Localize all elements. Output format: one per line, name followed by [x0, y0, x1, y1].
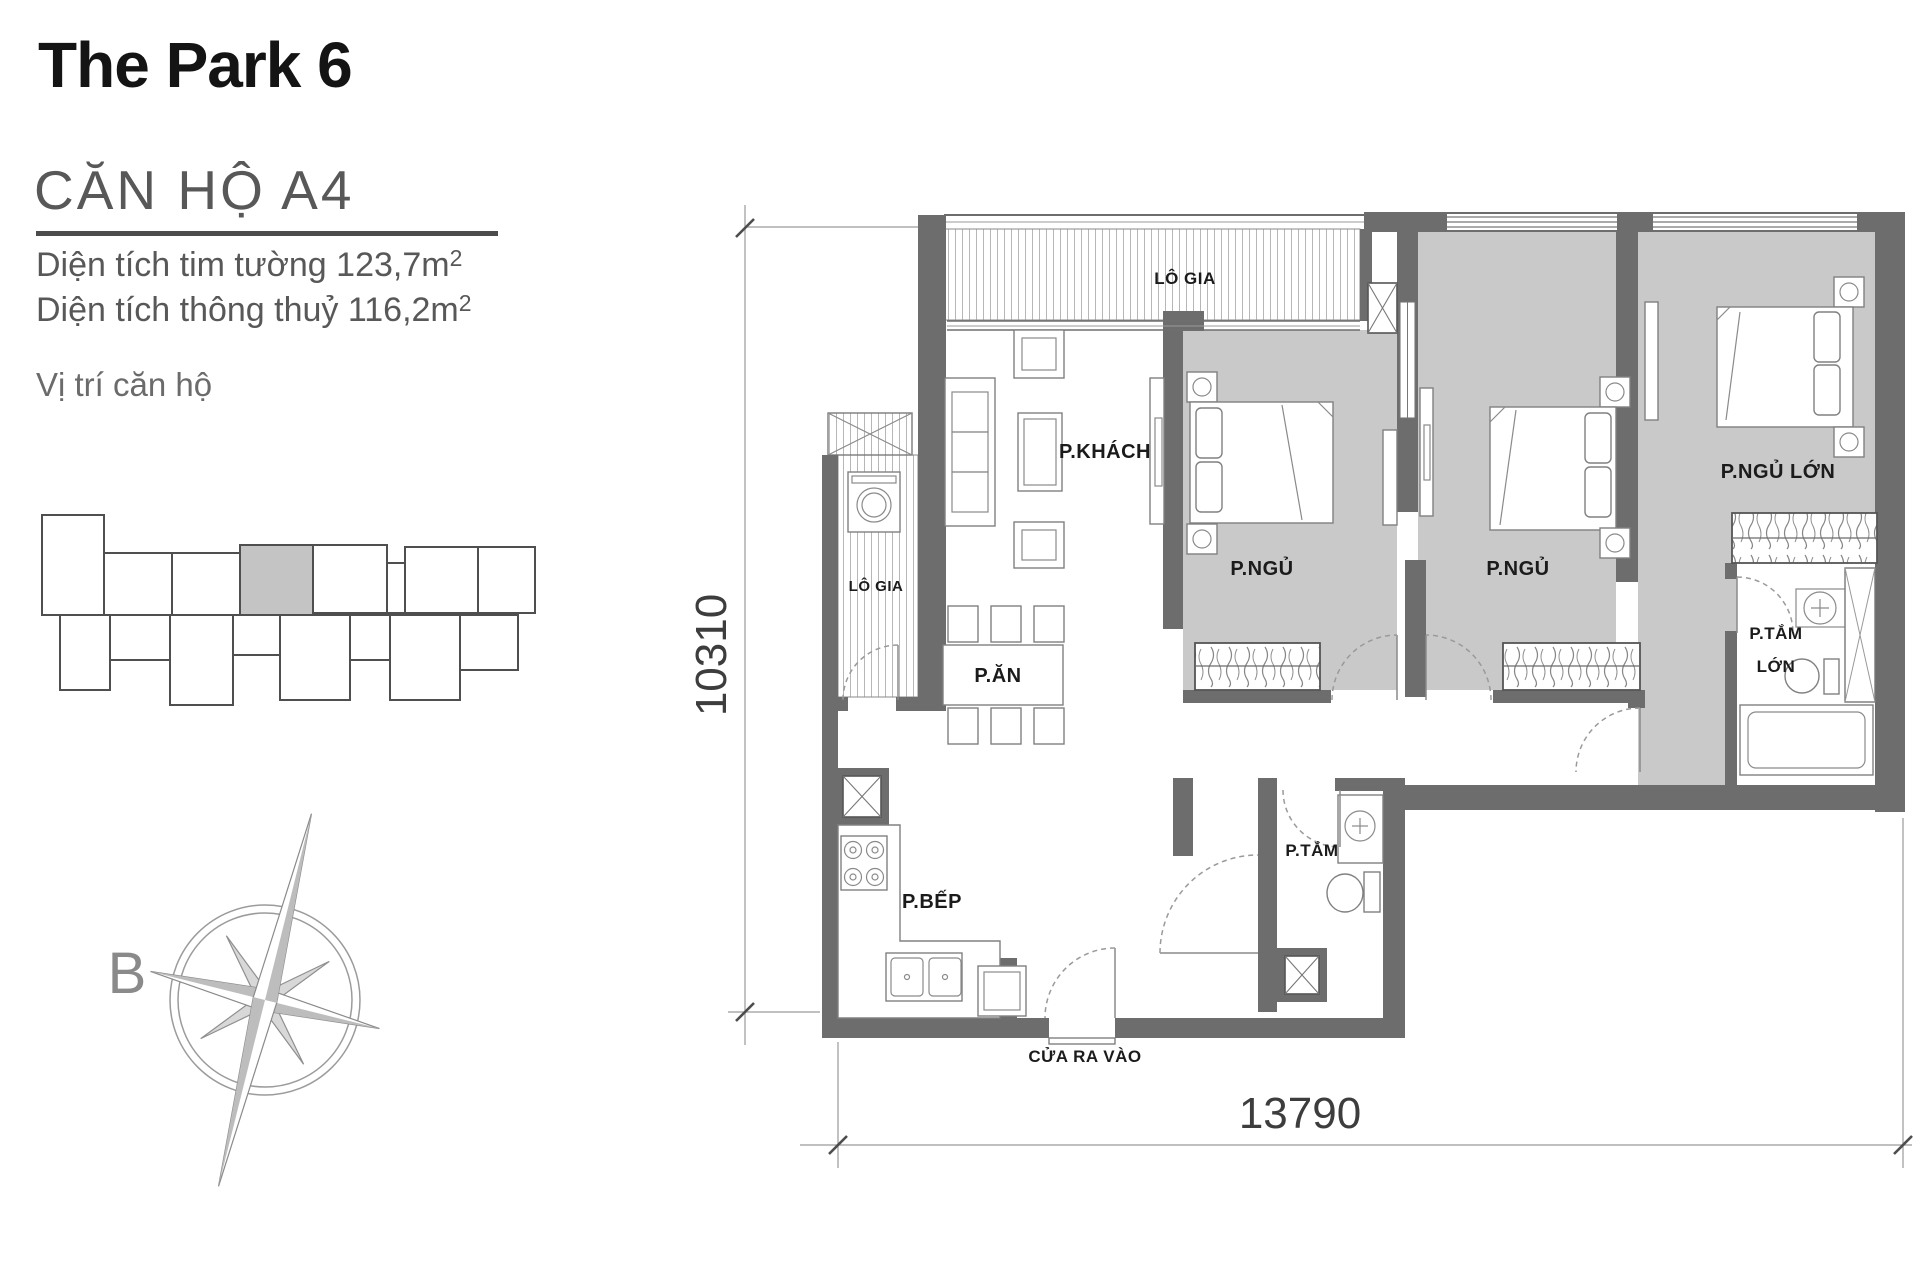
label-dining: P.ĂN: [974, 664, 1021, 687]
dimension-vertical: 10310: [687, 594, 736, 716]
label-bathroom: P.TẮM: [1285, 841, 1338, 860]
nightstand: [1834, 427, 1864, 457]
highlighted-unit: [240, 545, 313, 615]
nightstand: [1187, 524, 1217, 554]
nightstand: [1600, 377, 1630, 407]
door-hall: [1160, 855, 1258, 953]
pillow: [1585, 413, 1611, 463]
ac-ledge: [828, 413, 912, 455]
dimension-horizontal: 13790: [1239, 1089, 1361, 1138]
door-master-bedroom: [1576, 708, 1640, 772]
label-master-bath-1: P.TẮM: [1749, 624, 1802, 643]
chair: [948, 708, 978, 744]
label-balcony-side: LÔ GIA: [849, 577, 904, 595]
label-master-bedroom: P.NGỦ LỚN: [1721, 459, 1836, 483]
chair: [1034, 606, 1064, 642]
pillow: [1585, 467, 1611, 517]
window-master-bedroom: [1653, 214, 1857, 230]
shaft-kitchen: [843, 776, 881, 817]
plan-canvas: B: [0, 0, 1920, 1280]
window-bedroom2: [1447, 214, 1617, 230]
door-bathroom: [1283, 790, 1340, 847]
chair: [991, 708, 1021, 744]
unit-location-map: [42, 515, 535, 705]
label-master-bath-2: LỚN: [1757, 657, 1796, 676]
window-living-balcony: [947, 321, 1360, 330]
label-balcony-top: LÔ GIA: [1154, 269, 1216, 288]
pillow: [1814, 312, 1840, 362]
shaft-bathroom: [1285, 956, 1319, 994]
pillow: [1814, 365, 1840, 415]
compass-north-label: B: [108, 941, 147, 1006]
wardrobe-bedroom1: [1195, 643, 1320, 690]
pillow: [1196, 408, 1222, 458]
label-kitchen: P.BẾP: [902, 890, 962, 913]
dresser: [1420, 388, 1433, 516]
kitchen-sink: [886, 953, 962, 1001]
chair: [1034, 708, 1064, 744]
door-entrance: [1045, 948, 1115, 1018]
compass-icon: B: [104, 785, 426, 1215]
washing-machine: [848, 472, 900, 532]
stove: [841, 836, 887, 890]
dresser: [1645, 302, 1658, 420]
nightstand: [1600, 528, 1630, 558]
label-entrance: CỬA RA VÀO: [1028, 1047, 1141, 1066]
wardrobe-master: [1732, 513, 1877, 563]
dresser: [1383, 430, 1397, 525]
floorplan-page: The Park 6 CĂN HỘ A4 Diện tích tim tường…: [0, 0, 1920, 1280]
kitchen-furniture: [838, 825, 1026, 1018]
label-bedroom1: P.NGỦ: [1230, 556, 1293, 580]
label-living: P.KHÁCH: [1059, 440, 1151, 463]
label-bedroom2: P.NGỦ: [1486, 556, 1549, 580]
fridge: [978, 966, 1026, 1016]
shaft-balcony: [1368, 283, 1397, 333]
wardrobe-bedroom2: [1503, 643, 1640, 690]
nightstand: [1187, 372, 1217, 402]
toilet: [1327, 874, 1363, 912]
shower: [1845, 568, 1875, 702]
nightstand: [1834, 277, 1864, 307]
chair: [948, 606, 978, 642]
bathtub: [1740, 705, 1873, 775]
entrance-threshold: [1049, 1038, 1115, 1044]
pillow: [1196, 462, 1222, 512]
chair: [991, 606, 1021, 642]
window-divider: [1400, 302, 1415, 418]
